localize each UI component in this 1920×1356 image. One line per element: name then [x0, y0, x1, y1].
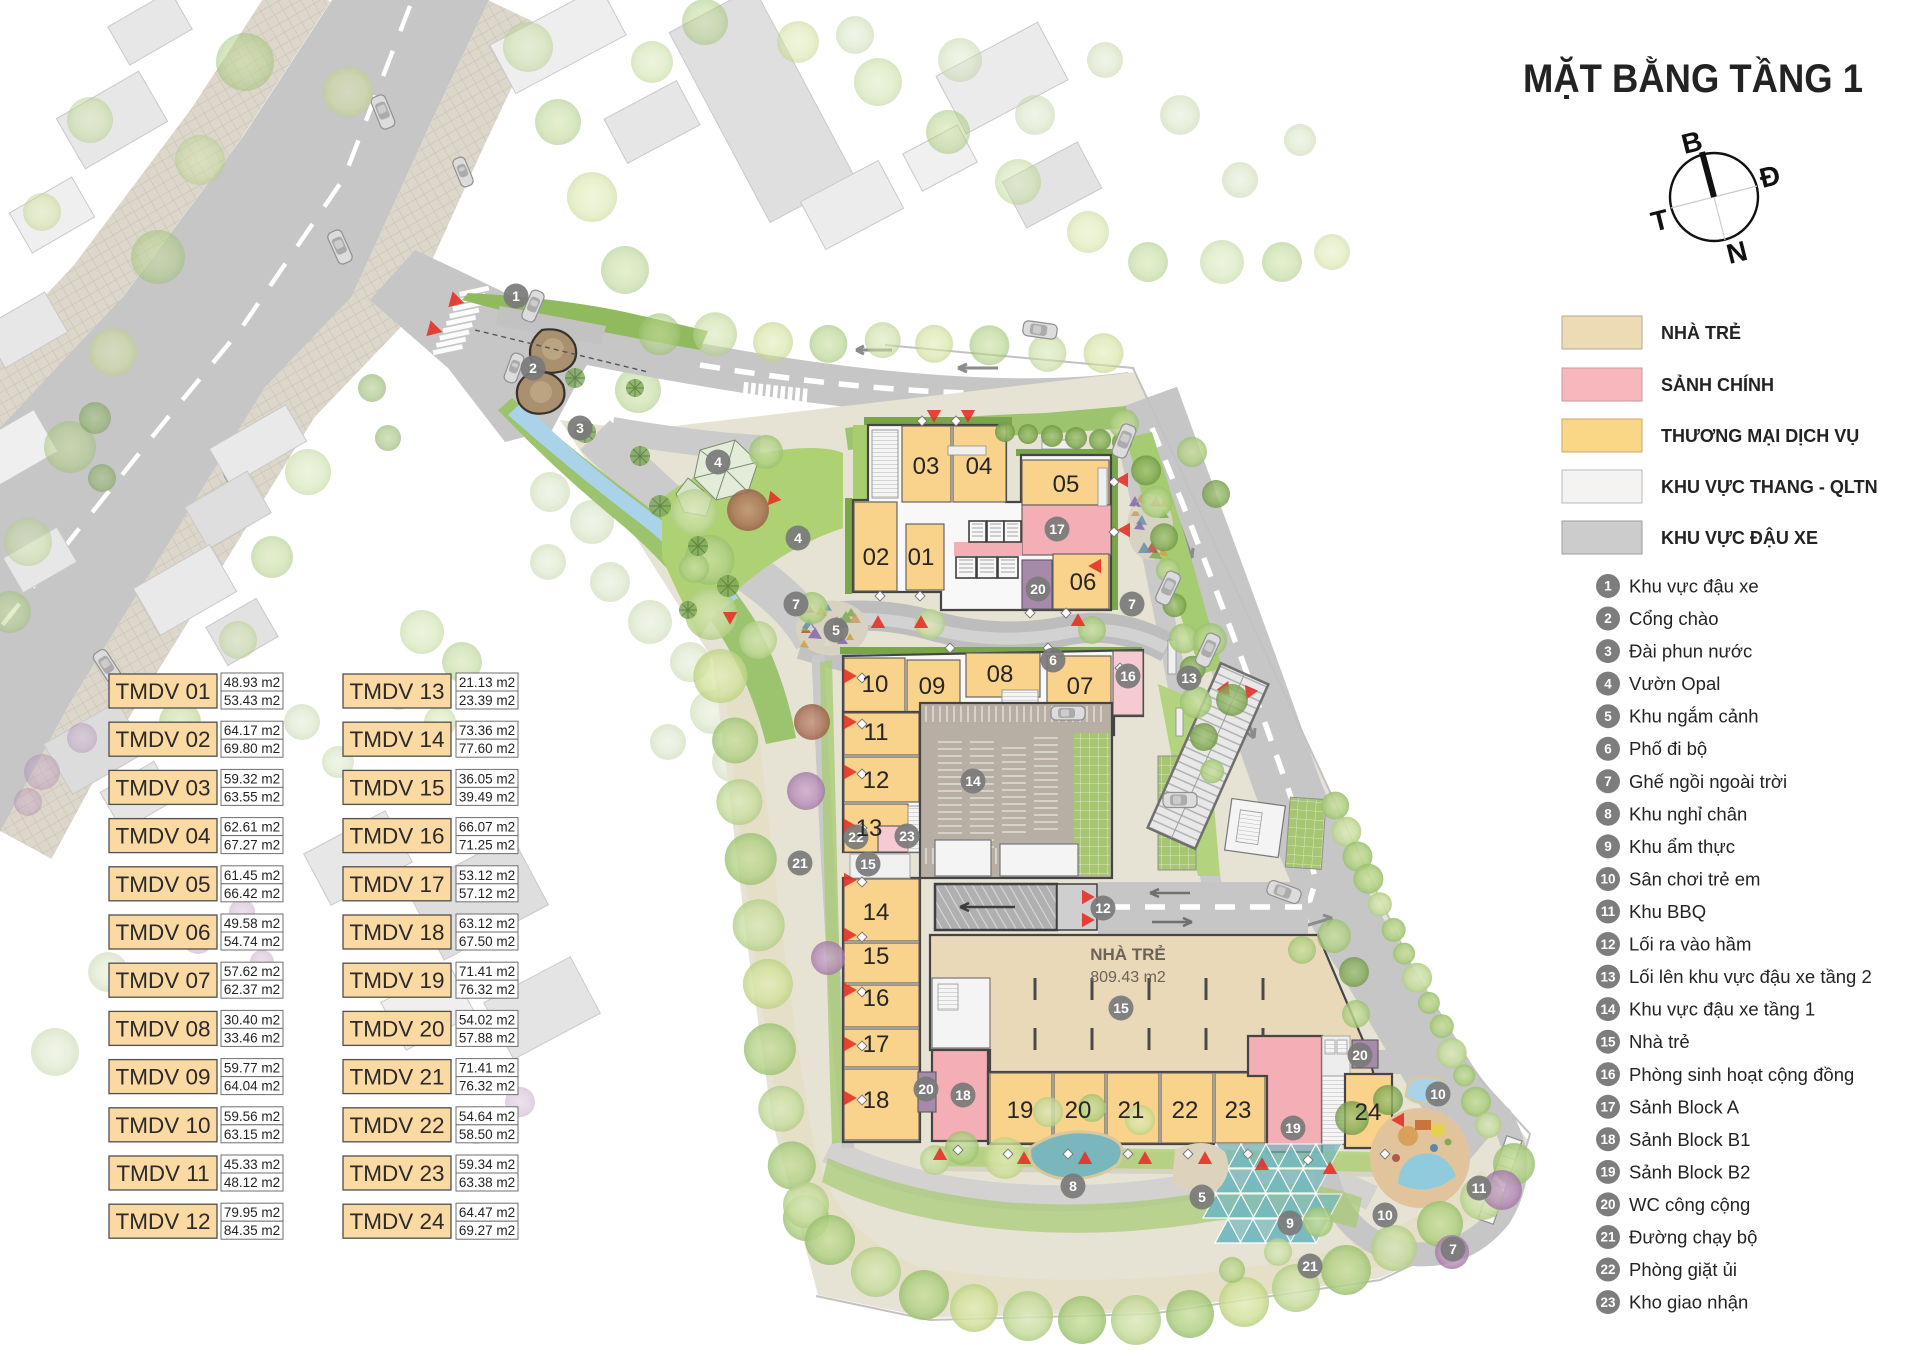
svg-text:17: 17: [1049, 521, 1065, 537]
svg-text:TMDV 24: TMDV 24: [349, 1209, 444, 1234]
svg-text:Phòng sinh hoạt cộng đồng: Phòng sinh hoạt cộng đồng: [1629, 1064, 1854, 1085]
svg-text:73.36 m2: 73.36 m2: [459, 723, 515, 738]
svg-text:61.45 m2: 61.45 m2: [224, 868, 280, 883]
svg-text:16: 16: [863, 985, 890, 1012]
svg-text:TMDV 03: TMDV 03: [115, 775, 210, 800]
svg-text:08: 08: [987, 661, 1014, 688]
svg-text:20: 20: [1352, 1047, 1368, 1063]
svg-text:TMDV 17: TMDV 17: [349, 872, 444, 897]
svg-text:04: 04: [966, 453, 993, 480]
svg-text:63.55 m2: 63.55 m2: [224, 789, 280, 804]
svg-text:62.37 m2: 62.37 m2: [224, 982, 280, 997]
svg-text:TMDV 05: TMDV 05: [115, 872, 210, 897]
svg-text:71.41 m2: 71.41 m2: [459, 964, 515, 979]
svg-text:20: 20: [1030, 581, 1046, 597]
svg-text:TMDV 22: TMDV 22: [349, 1113, 444, 1138]
svg-text:TMDV 15: TMDV 15: [349, 775, 444, 800]
svg-text:14: 14: [1600, 1002, 1616, 1017]
svg-text:Khu ẩm thực: Khu ẩm thực: [1629, 836, 1735, 857]
svg-text:05: 05: [1053, 471, 1080, 498]
svg-text:15: 15: [860, 856, 876, 872]
svg-text:Phòng giặt ủi: Phòng giặt ủi: [1629, 1259, 1737, 1280]
svg-text:Sân chơi trẻ em: Sân chơi trẻ em: [1629, 869, 1760, 890]
svg-text:TMDV 04: TMDV 04: [115, 824, 210, 849]
svg-text:6: 6: [1604, 742, 1612, 757]
svg-text:Sảnh Block B2: Sảnh Block B2: [1629, 1161, 1750, 1182]
svg-text:64.17 m2: 64.17 m2: [224, 723, 280, 738]
svg-text:63.15 m2: 63.15 m2: [224, 1127, 280, 1142]
svg-text:67.50 m2: 67.50 m2: [459, 934, 515, 949]
svg-text:Đường chạy bộ: Đường chạy bộ: [1629, 1227, 1757, 1248]
svg-text:13: 13: [1600, 969, 1616, 984]
svg-text:TMDV 06: TMDV 06: [115, 920, 210, 945]
svg-text:18: 18: [863, 1087, 890, 1114]
svg-text:20: 20: [918, 1081, 934, 1097]
svg-text:76.32 m2: 76.32 m2: [459, 1079, 515, 1094]
svg-text:62.61 m2: 62.61 m2: [224, 820, 280, 835]
svg-text:11: 11: [1601, 904, 1616, 919]
svg-text:22: 22: [1600, 1262, 1615, 1277]
svg-text:12: 12: [1095, 900, 1111, 916]
svg-text:Khu ngắm cảnh: Khu ngắm cảnh: [1629, 706, 1759, 727]
svg-text:01: 01: [908, 544, 935, 571]
svg-text:15: 15: [1113, 1000, 1129, 1016]
svg-text:21.13 m2: 21.13 m2: [459, 675, 515, 690]
svg-text:76.32 m2: 76.32 m2: [459, 982, 515, 997]
svg-text:19: 19: [1285, 1120, 1301, 1136]
svg-text:14: 14: [863, 899, 890, 926]
svg-text:54.64 m2: 54.64 m2: [459, 1109, 515, 1124]
svg-text:NHÀ TRẺ: NHÀ TRẺ: [1090, 945, 1166, 964]
svg-text:12: 12: [863, 767, 890, 794]
svg-text:7: 7: [792, 596, 800, 612]
svg-text:8: 8: [1604, 807, 1612, 822]
svg-text:16: 16: [1600, 1067, 1616, 1082]
svg-text:2: 2: [529, 360, 537, 376]
svg-text:TMDV 16: TMDV 16: [349, 824, 444, 849]
svg-text:16: 16: [1120, 668, 1136, 684]
svg-text:06: 06: [1070, 569, 1097, 596]
svg-text:7: 7: [1128, 596, 1136, 612]
svg-text:59.34 m2: 59.34 m2: [459, 1157, 515, 1172]
svg-text:45.33 m2: 45.33 m2: [224, 1157, 280, 1172]
svg-text:3: 3: [1604, 644, 1612, 659]
svg-text:Nhà trẻ: Nhà trẻ: [1629, 1031, 1690, 1052]
svg-text:20: 20: [1600, 1197, 1615, 1212]
svg-text:23: 23: [1225, 1097, 1252, 1124]
svg-text:59.77 m2: 59.77 m2: [224, 1061, 280, 1076]
svg-text:TMDV 10: TMDV 10: [115, 1113, 210, 1138]
svg-text:21: 21: [1118, 1097, 1145, 1124]
svg-text:5: 5: [1604, 709, 1612, 724]
svg-text:13: 13: [1181, 670, 1197, 686]
svg-text:23.39 m2: 23.39 m2: [459, 693, 515, 708]
svg-text:59.56 m2: 59.56 m2: [224, 1109, 280, 1124]
svg-text:7: 7: [1604, 774, 1612, 789]
svg-text:22: 22: [1172, 1097, 1199, 1124]
svg-text:8: 8: [1069, 1178, 1077, 1194]
svg-text:Ghế ngồi ngoài trời: Ghế ngồi ngoài trời: [1629, 771, 1787, 792]
svg-text:KHU VỰC ĐẬU XE: KHU VỰC ĐẬU XE: [1661, 527, 1818, 548]
svg-text:53.43 m2: 53.43 m2: [224, 693, 280, 708]
svg-text:13: 13: [856, 815, 883, 842]
svg-text:66.42 m2: 66.42 m2: [224, 886, 280, 901]
svg-text:Cổng chào: Cổng chào: [1629, 608, 1718, 629]
svg-text:21: 21: [1600, 1230, 1616, 1245]
svg-text:36.05 m2: 36.05 m2: [459, 771, 515, 786]
svg-text:84.35 m2: 84.35 m2: [224, 1223, 280, 1238]
svg-text:Vườn Opal: Vườn Opal: [1629, 673, 1720, 694]
svg-text:TMDV 01: TMDV 01: [115, 679, 210, 704]
svg-text:11: 11: [864, 719, 889, 746]
svg-text:TMDV 14: TMDV 14: [349, 727, 444, 752]
svg-text:9: 9: [1286, 1215, 1294, 1231]
svg-text:18: 18: [955, 1087, 971, 1103]
svg-text:TMDV 08: TMDV 08: [115, 1016, 210, 1041]
svg-text:59.32 m2: 59.32 m2: [224, 771, 280, 786]
svg-text:19: 19: [1007, 1097, 1034, 1124]
svg-text:15: 15: [1600, 1034, 1616, 1049]
svg-text:14: 14: [965, 773, 981, 789]
svg-text:09: 09: [919, 673, 946, 700]
svg-text:17: 17: [863, 1031, 890, 1058]
svg-text:57.12 m2: 57.12 m2: [459, 886, 515, 901]
svg-text:Sảnh Block B1: Sảnh Block B1: [1629, 1129, 1750, 1150]
svg-text:21: 21: [792, 855, 808, 871]
svg-text:53.12 m2: 53.12 m2: [459, 868, 515, 883]
svg-text:MẶT BẰNG TẦNG 1: MẶT BẰNG TẦNG 1: [1523, 55, 1863, 101]
svg-text:WC công cộng: WC công cộng: [1629, 1194, 1750, 1215]
svg-text:Khu vực đậu xe tầng 1: Khu vực đậu xe tầng 1: [1629, 999, 1815, 1020]
svg-text:66.07 m2: 66.07 m2: [459, 820, 515, 835]
svg-text:5: 5: [832, 622, 840, 638]
svg-text:23: 23: [899, 828, 915, 844]
svg-text:63.12 m2: 63.12 m2: [459, 916, 515, 931]
svg-text:6: 6: [1049, 652, 1057, 668]
svg-text:Lối lên khu vực đậu xe tầng 2: Lối lên khu vực đậu xe tầng 2: [1629, 966, 1872, 987]
svg-text:Kho giao nhận: Kho giao nhận: [1629, 1292, 1748, 1313]
svg-text:TMDV 21: TMDV 21: [349, 1065, 444, 1090]
svg-text:69.27 m2: 69.27 m2: [459, 1223, 515, 1238]
svg-text:4: 4: [794, 530, 802, 546]
svg-text:10: 10: [1430, 1086, 1446, 1102]
svg-text:THƯƠNG MẠI DỊCH VỤ: THƯƠNG MẠI DỊCH VỤ: [1661, 426, 1859, 446]
svg-text:9: 9: [1604, 839, 1612, 854]
svg-text:03: 03: [913, 453, 940, 480]
svg-text:24: 24: [1355, 1099, 1382, 1126]
svg-text:57.88 m2: 57.88 m2: [459, 1030, 515, 1045]
svg-text:71.41 m2: 71.41 m2: [459, 1061, 515, 1076]
svg-text:Khu vực đậu xe: Khu vực đậu xe: [1629, 576, 1759, 597]
svg-text:1: 1: [1604, 579, 1612, 594]
svg-text:30.40 m2: 30.40 m2: [224, 1012, 280, 1027]
svg-text:TMDV 09: TMDV 09: [115, 1065, 210, 1090]
svg-text:19: 19: [1600, 1165, 1615, 1180]
svg-text:TMDV 13: TMDV 13: [349, 679, 444, 704]
svg-text:63.38 m2: 63.38 m2: [459, 1175, 515, 1190]
svg-text:7: 7: [1449, 1241, 1457, 1257]
svg-text:10: 10: [1600, 872, 1615, 887]
svg-text:1: 1: [512, 288, 520, 304]
svg-text:11: 11: [1472, 1180, 1487, 1196]
svg-text:2: 2: [1604, 611, 1612, 626]
svg-text:4: 4: [714, 454, 722, 470]
svg-text:21: 21: [1302, 1258, 1318, 1274]
svg-text:79.95 m2: 79.95 m2: [224, 1205, 280, 1220]
svg-text:10: 10: [1377, 1207, 1393, 1223]
svg-text:809.43 m2: 809.43 m2: [1090, 969, 1166, 986]
svg-text:69.80 m2: 69.80 m2: [224, 741, 280, 756]
svg-text:TMDV 19: TMDV 19: [349, 968, 444, 993]
svg-text:18: 18: [1600, 1132, 1616, 1147]
svg-text:KHU VỰC THANG - QLTN: KHU VỰC THANG - QLTN: [1661, 477, 1878, 497]
svg-text:48.93 m2: 48.93 m2: [224, 675, 280, 690]
svg-text:54.02 m2: 54.02 m2: [459, 1012, 515, 1027]
svg-text:20: 20: [1065, 1097, 1092, 1124]
svg-text:64.47 m2: 64.47 m2: [459, 1205, 515, 1220]
svg-text:Lối ra vào hầm: Lối ra vào hầm: [1629, 934, 1751, 955]
svg-text:TMDV 12: TMDV 12: [115, 1209, 210, 1234]
svg-text:5: 5: [1198, 1189, 1206, 1205]
svg-text:15: 15: [863, 943, 890, 970]
svg-text:12: 12: [1600, 937, 1615, 952]
svg-text:SẢNH CHÍNH: SẢNH CHÍNH: [1661, 374, 1774, 395]
svg-text:TMDV 18: TMDV 18: [349, 920, 444, 945]
svg-text:NHÀ TRẺ: NHÀ TRẺ: [1661, 322, 1741, 343]
svg-text:10: 10: [862, 671, 889, 698]
svg-text:TMDV 02: TMDV 02: [115, 727, 210, 752]
svg-text:49.58 m2: 49.58 m2: [224, 916, 280, 931]
svg-text:77.60 m2: 77.60 m2: [459, 741, 515, 756]
svg-text:TMDV 23: TMDV 23: [349, 1161, 444, 1186]
svg-text:Đài phun nước: Đài phun nước: [1629, 641, 1752, 662]
svg-text:4: 4: [1604, 676, 1612, 691]
svg-text:Khu nghỉ chân: Khu nghỉ chân: [1629, 803, 1747, 824]
svg-text:Khu BBQ: Khu BBQ: [1629, 901, 1706, 922]
svg-text:33.46 m2: 33.46 m2: [224, 1030, 280, 1045]
svg-text:TMDV 07: TMDV 07: [115, 968, 210, 993]
svg-text:58.50 m2: 58.50 m2: [459, 1127, 515, 1142]
svg-text:Phố đi bộ: Phố đi bộ: [1629, 738, 1707, 759]
svg-text:07: 07: [1067, 673, 1094, 700]
svg-text:54.74 m2: 54.74 m2: [224, 934, 280, 949]
svg-text:Sảnh Block A: Sảnh Block A: [1629, 1096, 1740, 1117]
svg-text:67.27 m2: 67.27 m2: [224, 838, 280, 853]
svg-text:TMDV 11: TMDV 11: [116, 1161, 209, 1186]
svg-text:3: 3: [576, 420, 584, 436]
svg-text:71.25 m2: 71.25 m2: [459, 838, 515, 853]
svg-text:39.49 m2: 39.49 m2: [459, 789, 515, 804]
svg-text:TMDV 20: TMDV 20: [349, 1016, 444, 1041]
svg-text:57.62 m2: 57.62 m2: [224, 964, 280, 979]
svg-text:23: 23: [1600, 1295, 1616, 1310]
svg-text:64.04 m2: 64.04 m2: [224, 1079, 280, 1094]
svg-text:17: 17: [1600, 1100, 1615, 1115]
svg-text:02: 02: [863, 544, 890, 571]
svg-text:48.12 m2: 48.12 m2: [224, 1175, 280, 1190]
